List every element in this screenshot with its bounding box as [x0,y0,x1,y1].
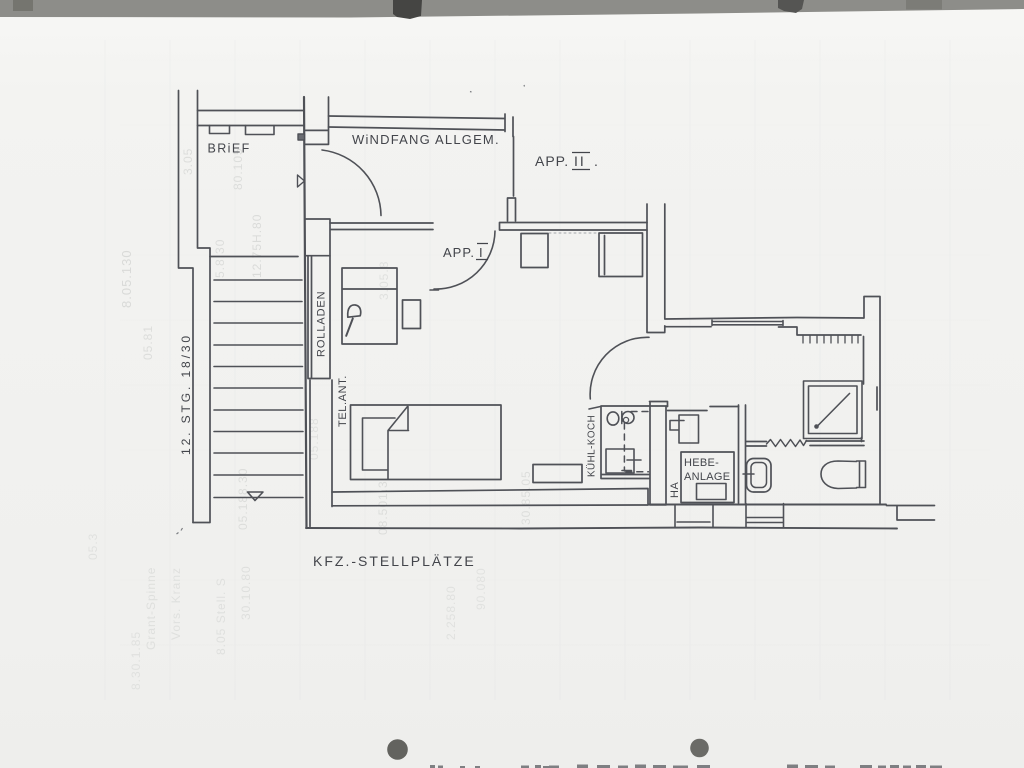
svg-text:KÜHL-KOCH: KÜHL-KOCH [587,415,598,477]
svg-text:TEL.ANT.: TEL.ANT. [337,375,349,427]
svg-text:2.258.80: 2.258.80 [444,585,458,640]
svg-text:ROLLADEN: ROLLADEN [316,291,328,358]
svg-text:05.3: 05.3 [86,533,100,560]
svg-text:05.188.30: 05.188.30 [236,468,250,530]
svg-text:ANLAGE: ANLAGE [684,471,730,483]
svg-text:HA: HA [669,482,681,498]
svg-text:12.75H.80: 12.75H.80 [250,214,264,278]
svg-text:KFZ.-STELLPLÄTZE: KFZ.-STELLPLÄTZE [313,553,476,569]
svg-text:APP.: APP. [443,245,475,260]
svg-text:8.05 Stell. S: 8.05 Stell. S [214,577,228,655]
svg-text:BRiEF: BRiEF [208,142,251,156]
svg-text:WiNDFANG ALLGEM.: WiNDFANG ALLGEM. [352,132,500,147]
svg-text:HEBE-: HEBE- [684,457,719,469]
svg-text:05.81: 05.81 [141,325,155,360]
svg-text:.: . [594,153,598,169]
svg-text:3.05.8: 3.05.8 [377,261,391,300]
svg-text:12. STG. 18/30: 12. STG. 18/30 [179,333,193,455]
svg-text:3.05: 3.05 [181,148,195,175]
svg-text:I: I [479,245,483,260]
svg-text:Grant-Spinne: Grant-Spinne [144,567,158,650]
svg-text:8.05.130: 8.05.130 [119,249,134,308]
svg-text:05.188: 05.188 [307,417,321,460]
svg-text:08.501.3: 08.501.3 [376,480,390,535]
svg-text:APP.: APP. [535,153,569,169]
svg-text:Vors. Kranz: Vors. Kranz [169,567,183,640]
svg-text:II: II [574,153,586,169]
svg-text:5.8.30: 5.8.30 [213,239,227,278]
svg-text:8.30.1.85: 8.30.1.85 [129,631,143,690]
svg-text:30.10.80: 30.10.80 [239,565,253,620]
svg-text:30.85.05: 30.85.05 [519,470,533,525]
svg-text:90.080: 90.080 [474,567,488,610]
